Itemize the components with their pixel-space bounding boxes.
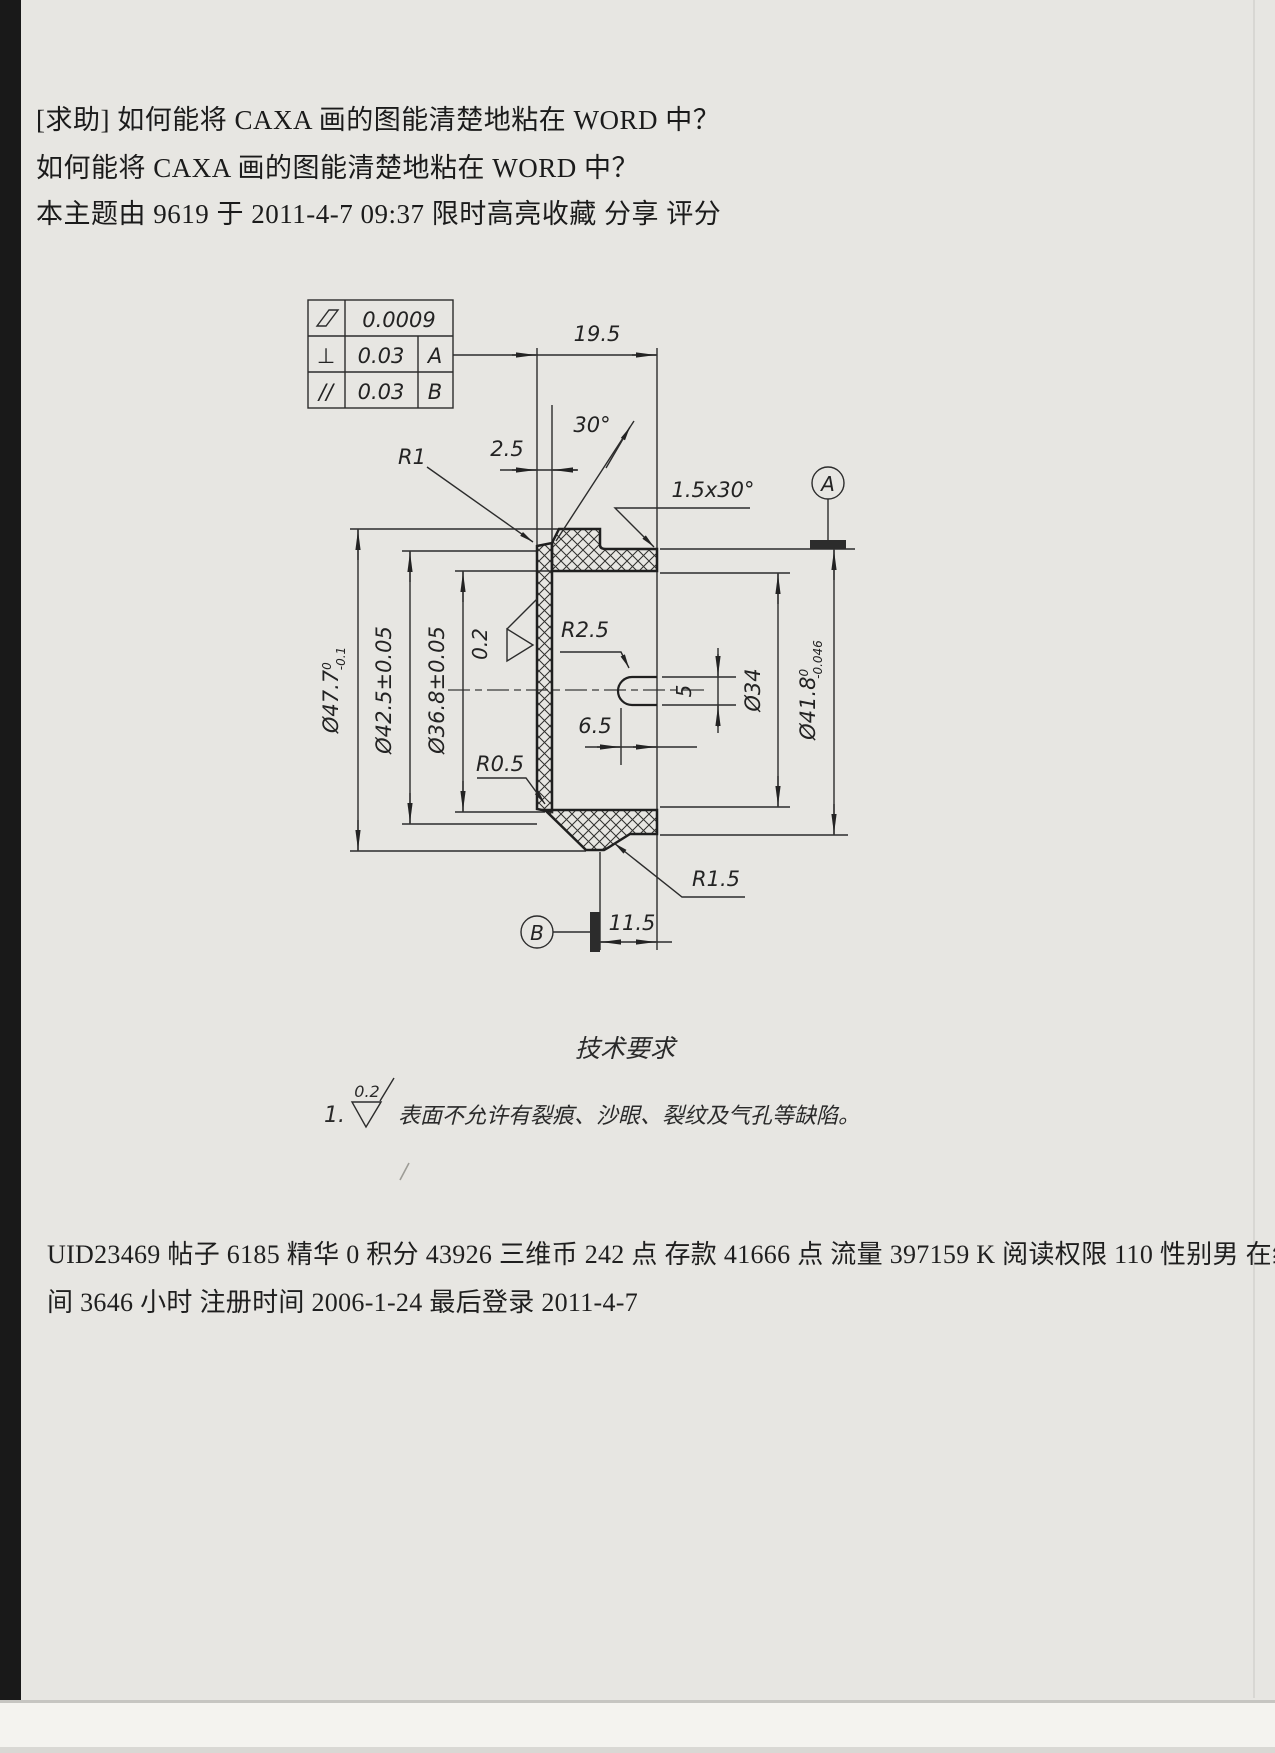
user-info-line1: UID23469 帖子 6185 精华 0 积分 43926 三维币 242 点… bbox=[47, 1234, 1275, 1271]
parallelism-datum: B bbox=[428, 380, 442, 404]
datum-a: A bbox=[810, 467, 846, 549]
left-wall-section bbox=[537, 543, 552, 812]
tech-requirements: 技术要求 1. 0.2 表面不允许有裂痕、沙眼、裂纹及气孔等缺陷。 bbox=[324, 1034, 860, 1129]
dim-hole-depth: 6.5 bbox=[578, 714, 611, 738]
tolerance-frame: 0.0009 ⊥ 0.03 A // 0.03 B bbox=[308, 300, 453, 408]
tech-req-item-number: 1. bbox=[324, 1103, 345, 1128]
dimension-labels: 19.5 30° 2.5 R1 1.5x30° R2.5 0.2 R0.5 6.… bbox=[319, 322, 825, 935]
perpendicularity-icon: ⊥ bbox=[317, 344, 335, 368]
dim-r25: R2.5 bbox=[561, 618, 609, 642]
dim-d477: Ø47.70-0.1 bbox=[319, 647, 348, 734]
dim-chamfer-angle: 30° bbox=[573, 413, 610, 437]
scanner-bed-strip: 三维网www.3dportal.cn bbox=[0, 1700, 1275, 1753]
tech-req-text: 表面不允许有裂痕、沙眼、裂纹及气孔等缺陷。 bbox=[398, 1104, 860, 1129]
datum-b-label: B bbox=[530, 921, 544, 945]
tech-req-heading: 技术要求 bbox=[575, 1034, 678, 1063]
parallelism-value: 0.03 bbox=[358, 380, 405, 404]
scan-bottom-edge bbox=[0, 1747, 1275, 1753]
r05-leader bbox=[477, 778, 545, 804]
dim-bottom-width: 11.5 bbox=[609, 911, 656, 935]
flatness-value: 0.0009 bbox=[362, 308, 435, 332]
r25-leader bbox=[560, 652, 629, 668]
dim-r1: R1 bbox=[398, 445, 426, 469]
datum-a-label: A bbox=[819, 472, 835, 496]
bottom-flange-section bbox=[545, 810, 657, 850]
r1-leader bbox=[427, 467, 533, 542]
stray-mark bbox=[400, 1163, 409, 1180]
center-hole bbox=[618, 677, 657, 705]
dim-r15: R1.5 bbox=[692, 867, 740, 891]
dim-r05: R0.5 bbox=[476, 752, 524, 776]
dim-bore-roughness: 0.2 bbox=[468, 628, 492, 660]
dim-chamfer-right: 1.5x30° bbox=[671, 478, 754, 502]
perpendicularity-datum: A bbox=[426, 344, 442, 368]
flatness-icon bbox=[317, 310, 338, 326]
user-info-line2: 间 3646 小时 注册时间 2006-1-24 最后登录 2011-4-7 bbox=[47, 1282, 638, 1319]
dim-hole-dia: 5 bbox=[672, 685, 696, 698]
perpendicularity-value: 0.03 bbox=[358, 344, 405, 368]
dim-total-width: 19.5 bbox=[574, 322, 621, 346]
dim-d368: Ø36.8±0.05 bbox=[425, 626, 449, 755]
dim-wall-thickness: 2.5 bbox=[490, 437, 523, 461]
parallelism-icon: // bbox=[317, 380, 335, 404]
dim-d418: Ø41.80-0.046 bbox=[796, 640, 825, 741]
dim-d34: Ø34 bbox=[741, 668, 765, 712]
scanned-page: [求助] 如何能将 CAXA 画的图能清楚地粘在 WORD 中？ 如何能将 CA… bbox=[0, 0, 1275, 1753]
top-flange-section bbox=[552, 529, 657, 571]
chamfer-leader bbox=[615, 508, 750, 547]
roughness-icon bbox=[507, 599, 537, 661]
tech-req-roughness: 0.2 bbox=[354, 1082, 379, 1101]
datum-b: B bbox=[521, 912, 600, 952]
engineering-drawing: 0.0009 ⊥ 0.03 A // 0.03 B bbox=[0, 0, 1275, 1753]
dim-d425: Ø42.5±0.05 bbox=[372, 626, 396, 755]
